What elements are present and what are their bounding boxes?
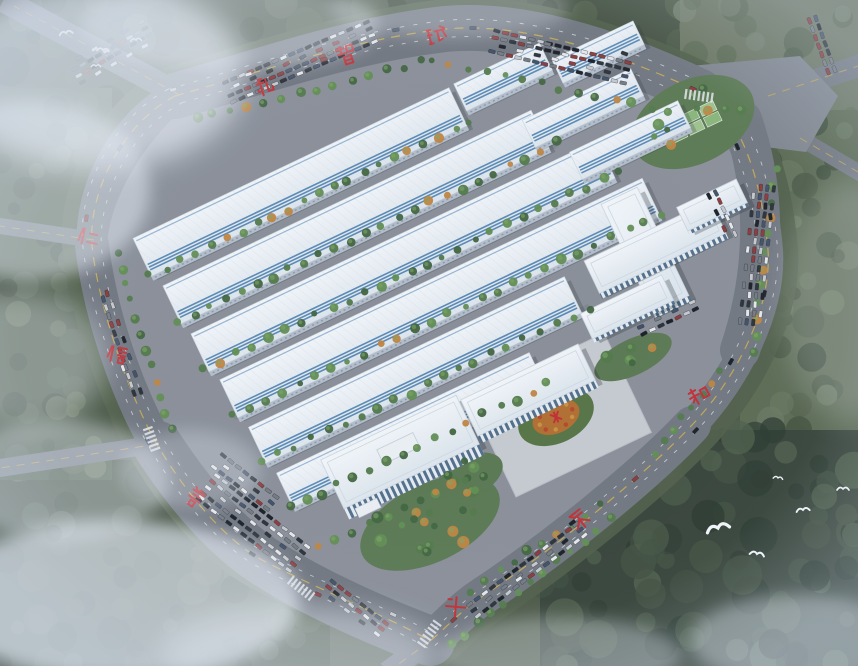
industrial-park-aerial-rendering: 仁信礼智诚义乐和善 [0, 0, 858, 666]
mist-clouds [0, 0, 858, 666]
edge-haze-overlay [0, 0, 858, 666]
rendering-canvas: 仁信礼智诚义乐和善 [0, 0, 858, 666]
